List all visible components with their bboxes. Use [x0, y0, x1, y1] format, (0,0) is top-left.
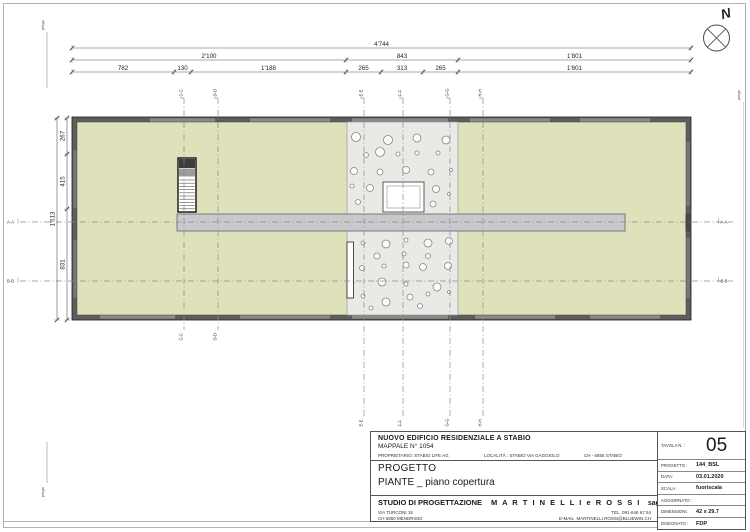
pebble: [396, 152, 400, 156]
pebble: [374, 253, 380, 259]
pebble: [426, 254, 431, 259]
pebble: [352, 133, 361, 142]
pebble: [426, 292, 430, 296]
dimension-value: 782: [118, 65, 129, 72]
dimension-value: 2'100: [202, 53, 218, 60]
title-block-fields: TAVOLA N. :05PROGETTO :144_BSLDATA:03.01…: [657, 431, 746, 530]
progetto-label: PROGETTO: [378, 463, 657, 474]
dimension-value: 313: [397, 65, 408, 72]
wall-opening: [580, 118, 650, 121]
skylight: [383, 182, 424, 212]
north-label: N: [719, 5, 733, 22]
wall-opening: [73, 150, 76, 208]
field-value: FDP: [696, 521, 707, 527]
wall-opening: [352, 118, 448, 121]
dimension-value: 265: [358, 65, 369, 72]
section-label-bottom: E-E: [359, 419, 364, 426]
section-label-top: D-D: [213, 89, 218, 96]
section-label-top: G-G: [445, 89, 450, 97]
dimension-value: 1'513: [50, 211, 57, 227]
section-label-top: F-F: [398, 90, 403, 97]
section-label-left: A-A: [7, 220, 14, 225]
field-label: DIMENSIONI:: [661, 509, 696, 514]
dimension-value: 415: [60, 176, 67, 187]
dimension-value: 843: [397, 53, 408, 60]
pebble: [404, 282, 408, 286]
drawing-sheet: C-CC-CD-DD-DE-EE-EF-FF-FG-GG-GH-HH-HA-AA…: [0, 0, 750, 532]
dimension-value: 1'188: [261, 65, 277, 72]
pebble: [415, 151, 419, 155]
field-value: 03.01.2020: [696, 474, 724, 480]
pebble: [418, 304, 423, 309]
field-label: SCALA :: [661, 486, 696, 491]
titleblock-field-row: SCALA :fuoriscala: [658, 483, 745, 495]
stair-landing: [179, 159, 195, 168]
pebble: [382, 264, 386, 268]
dimension-value: 831: [60, 259, 67, 270]
field-label: AGGIORNATO :: [661, 498, 696, 503]
pebble: [404, 238, 408, 242]
titleblock-field-row: DATA:03.01.2020: [658, 472, 745, 484]
wall-opening: [250, 118, 330, 121]
section-label-right: B-B: [721, 279, 728, 284]
pebble: [382, 240, 390, 248]
fold-mark-label: piega: [40, 19, 45, 30]
wall-opening: [100, 315, 175, 318]
title-block-project: PROGETTO PIANTE _ piano copertura: [371, 461, 657, 496]
wall-opening: [475, 315, 555, 318]
section-label-top: C-C: [179, 89, 184, 96]
wall-opening: [686, 142, 689, 206]
pebble: [350, 184, 354, 188]
studio-email: E-MAIL MARTINELLI.ROSSI@BLUEWIN.CH: [559, 516, 651, 522]
roof-element: [347, 242, 354, 298]
dimension-value: 130: [177, 65, 188, 72]
section-label-bottom: F-F: [398, 420, 403, 427]
pebble: [413, 134, 421, 142]
owner-row: PROPRIETARIO: STABIO LIFE AG LOCALITÀ : …: [378, 453, 657, 458]
parcel-number: MAPPALE N° 1054: [378, 443, 657, 450]
field-value: 42 x 29.7: [696, 509, 719, 515]
field-value: fuoriscala: [696, 485, 722, 491]
pebble: [351, 168, 358, 175]
pebble: [445, 263, 452, 270]
title-block: NUOVO EDIFICIO RESIDENZIALE A STABIO MAP…: [370, 431, 658, 522]
pebble: [382, 298, 390, 306]
wall-opening: [150, 118, 215, 121]
pebble: [407, 294, 413, 300]
section-label-bottom: D-D: [213, 333, 218, 340]
field-label: DATA:: [661, 474, 696, 479]
pebble: [424, 239, 432, 247]
pebble: [361, 294, 365, 298]
field-value: 144_BSL: [696, 462, 719, 468]
pebble: [402, 252, 406, 256]
section-label-bottom: H-H: [478, 419, 483, 426]
titleblock-field-row: PROGETTO :144_BSL: [658, 460, 745, 472]
titleblock-field-row: DISEGNATO :FDP: [658, 518, 745, 530]
fold-mark-label: piega: [736, 89, 741, 100]
pebble: [436, 151, 440, 155]
pebble: [433, 186, 440, 193]
section-label-top: H-H: [478, 89, 483, 96]
wall-opening: [352, 315, 448, 318]
wall-opening: [686, 238, 689, 298]
pebble: [420, 264, 427, 271]
pebble: [403, 262, 409, 268]
pebble: [376, 148, 385, 157]
pebble: [377, 169, 383, 175]
pebble: [369, 306, 373, 310]
stair-platform: [179, 169, 195, 177]
wall-opening: [590, 315, 660, 318]
title-block-header: NUOVO EDIFICIO RESIDENZIALE A STABIO MAP…: [371, 432, 657, 461]
owner-label: PROPRIETARIO: STABIO LIFE AG: [378, 453, 484, 458]
dimension-value: 4'744: [374, 41, 390, 48]
locality-label: LOCALITÀ : STABIO VIA GAGGIOLO: [484, 453, 584, 458]
drawing-title: PIANTE _ piano copertura: [378, 477, 657, 488]
field-label: DISEGNATO :: [661, 521, 696, 526]
section-label-top: E-E: [359, 89, 364, 96]
titleblock-field-row: TAVOLA N. :05: [658, 432, 745, 460]
studio-label: STUDIO DI PROGETTAZIONE: [378, 498, 482, 507]
pebble: [356, 200, 361, 205]
section-label-bottom: G-G: [445, 419, 450, 427]
section-label-left: B-B: [7, 279, 14, 284]
pebble: [433, 283, 441, 291]
dimension-value: 267: [60, 130, 67, 141]
wall-opening: [73, 240, 76, 298]
field-label: PROGETTO :: [661, 463, 696, 468]
field-label: TAVOLA N. :: [661, 443, 696, 448]
wall-opening: [470, 118, 550, 121]
section-label-bottom: C-C: [179, 333, 184, 340]
field-value: 05: [706, 435, 727, 457]
project-title: NUOVO EDIFICIO RESIDENZIALE A STABIO: [378, 435, 657, 442]
titleblock-field-row: DIMENSIONI:42 x 29.7: [658, 506, 745, 518]
walkway: [177, 214, 625, 231]
pebble: [442, 136, 450, 144]
place-label: CH - 6855 STABIO: [584, 453, 622, 458]
fold-mark-label: piega: [40, 486, 45, 497]
title-block-studio: STUDIO DI PROGETTAZIONE M A R T I N E L …: [371, 496, 657, 522]
pebble: [384, 136, 393, 145]
dimension-value: 265: [435, 65, 446, 72]
titleblock-field-row: AGGIORNATO :: [658, 495, 745, 507]
dimension-value: 1'801: [567, 53, 583, 60]
pebble: [367, 185, 374, 192]
wall-opening: [240, 315, 330, 318]
pebble: [361, 241, 365, 245]
pebble: [428, 169, 434, 175]
section-label-right: A-A: [721, 220, 728, 225]
pebble: [403, 167, 410, 174]
pebble: [378, 278, 386, 286]
pebble: [430, 201, 436, 207]
pebble: [446, 238, 453, 245]
studio-name: M A R T I N E L L I e R O S S I: [491, 498, 641, 507]
dimension-value: 1'801: [567, 65, 583, 72]
studio-address-2: CH 6850 MENDRISIO: [378, 516, 423, 522]
wall-opening-detail: [686, 214, 692, 232]
